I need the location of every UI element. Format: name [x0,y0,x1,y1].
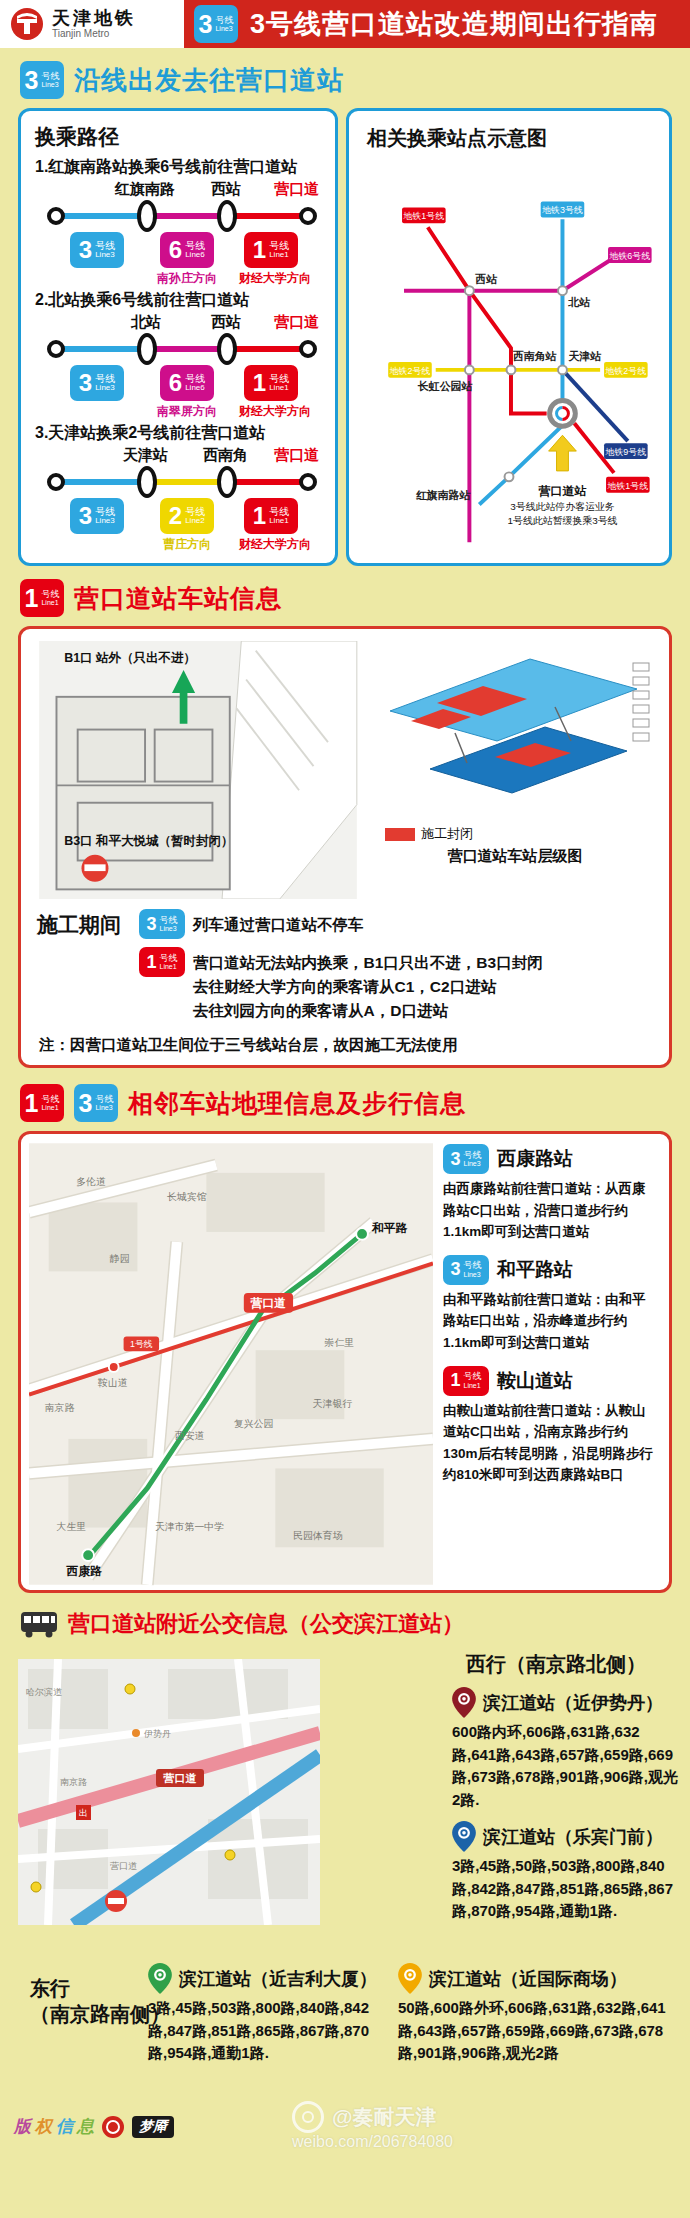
station-label: 北站 [567,297,590,309]
station-layer-diagram [375,641,655,821]
line6-map-badge: 地铁6号线 [609,251,651,261]
line1-map-badge-2: 地铁1号线 [607,481,649,491]
bus-section-title: 营口道站附近公交信息（公交滨江道站） [68,1609,464,1639]
bus-section-header: 营口道站附近公交信息（公交滨江道站） [20,1609,670,1639]
station-floorplan: B1口 站外（只出不进） B3口 和平大悦城（暂时封闭） [33,641,363,899]
mengyan-logo: 梦厣 [132,2116,174,2138]
line1-map-badge: 地铁1号线 [403,211,445,221]
app-header: 天津地铁 Tianjin Metro 3 号线Line3 3号线营口道站改造期间… [0,0,690,48]
station-info-box: B1口 站外（只出不进） B3口 和平大悦城（暂时封闭） [18,626,672,1068]
hepinglu-station-label: 和平路 [371,1221,408,1235]
network-map-heading: 相关换乘站点示意图 [367,125,657,152]
layer-diagram-caption: 营口道站车站层级图 [448,847,583,866]
line6-badge: 6号线Line6 [160,365,214,401]
infographic-poster: { "header":{"logo_cn":"天津地铁","logo_en":"… [0,0,690,2218]
map-pin-icon [452,1821,476,1852]
line2-map-badge-left: 地铁2号线 [389,366,431,376]
section2-title: 营口道站车站信息 [74,582,282,615]
line6-badge: 6号线Line6 [160,232,214,268]
bus-info-section: 营口道 出 哈尔滨道 南京路 营口道 伊势丹 西行（南京路北侧） 滨江道站（近伊… [0,1645,690,2097]
line3-badge: 3号线Line3 [443,1255,489,1285]
map-label: 长城宾馆 [167,1191,207,1202]
red-seal-logo [102,2116,124,2138]
walk-item-anshandao: 1号线Line1 鞍山道站 由鞍山道站前往营口道站：从鞍山道站C口出站，沿南京路… [443,1366,657,1486]
restroom-note: 注：因营口道站卫生间位于三号线站台层，故因施工无法使用 [21,1031,669,1068]
map-label: 天津市第一中学 [155,1521,224,1532]
page-title: 3号线营口道站改造期间出行指南 [250,6,658,42]
bus-routes: 3路,45路,503路,800路,840路,842路,847路,851路,865… [148,1997,386,2065]
network-schematic: 地铁1号线 地铁3号线 地铁6号线 地铁2号线 地铁2号线 地铁9号线 地铁1号… [361,154,657,562]
walk-info-box: 1号线 营口道 西康路 和平路 多伦道 长城宾馆 静园 鞍山道 南京路 西安道 … [18,1131,672,1593]
camera-icon [292,2101,324,2133]
note-line1: 3号线此站停办客运业务 [510,502,615,513]
line1-badge: 1 号线Line1 [20,1084,64,1122]
xikanglu-station-label: 西康路 [65,1564,102,1578]
copyright-logos: 版 权 信 息 梦厣 [14,2115,174,2138]
line2-badge: 2号线Line2 [160,498,214,534]
bus-stop-guoji: 滨江道站（近国际商场） 50路,600路外环,606路,631路,632路,64… [398,1963,680,2065]
logo-cn: 天津地铁 [52,9,136,29]
network-map-panel: 相关换乘站点示意图 地铁1号线 地铁3号线 地铁6号线 地铁2号线 地铁2号线 [346,108,672,566]
line3-notice: 列车通过营口道站不停车 [193,909,364,939]
transfer-route-1: 1.红旗南路站换乘6号线前往营口道站 红旗南路 西站 营口道 3号线Line3 … [35,157,321,284]
map-label: 营口道 [110,1861,137,1871]
line9-map-badge: 地铁9号线 [605,447,647,457]
exit-b3-label: B3口 和平大悦城（暂时封闭） [64,833,233,848]
bus-icon [20,1610,58,1638]
line1-badge: 1号线Line1 [443,1366,489,1396]
footer: 版 权 信 息 梦厣 @奏耐天津 weibo.com/206784080 [0,2099,690,2157]
map-label: 大生里 [57,1521,87,1532]
line3-badge: 3 号线Line3 [194,5,238,43]
station-label: 西南角站 [512,350,557,362]
section1-header: 3 号线Line3 沿线出发去往营口道站 [20,61,670,99]
line1-badge: 1号线Line1 [244,365,298,401]
westbound-label: 西行（南京路北侧） [466,1651,678,1677]
map-label: 南京路 [45,1402,75,1413]
transfer-routes-panel: 换乘路径 1.红旗南路站换乘6号线前往营口道站 红旗南路 西站 营口道 3号线L… [18,108,338,566]
map-label: 民园体育场 [293,1530,342,1541]
map-label: 复兴公园 [234,1418,273,1429]
construction-period: 施工期间 3号线Line3 列车通过营口道站不停车 1号线Line1 营口道站无… [21,899,669,1031]
line1-badge: 1号线Line1 [139,947,185,977]
bus-routes: 50路,600路外环,606路,631路,632路,641路,643路,657路… [398,1997,680,2065]
map-label: 静园 [109,1253,130,1264]
tianjin-metro-logo: 天津地铁 Tianjin Metro [0,0,184,48]
walk-item-xikanglu: 3号线Line3 西康路站 由西康路站前往营口道站：从西康路站C口出站，沿营口道… [443,1144,657,1243]
transfer-heading: 换乘路径 [35,123,321,151]
section3-header: 1 号线Line1 3 号线Line3 相邻车站地理信息及步行信息 [20,1084,670,1122]
exit-marker: 出 [79,1808,88,1818]
map-label: 天津银行 [313,1398,353,1409]
map-pin-icon [398,1963,422,1994]
line3-badge: 3号线Line3 [139,909,185,939]
logo-en: Tianjin Metro [52,28,136,39]
line1-map-tag: 1号线 [130,1339,153,1349]
map-label: 崇仁里 [325,1337,355,1348]
station-label: 西站 [474,273,497,285]
line3-badge: 3号线Line3 [70,365,124,401]
station-label: 红旗南路站 [415,489,470,501]
transfer-route-2: 2.北站换乘6号线前往营口道站 北站 西站 营口道 3号线Line3 6号线Li… [35,290,321,417]
legend-swatch [385,828,415,841]
line3-badge: 3 号线Line3 [20,61,64,99]
line2-map-badge-right: 地铁2号线 [605,366,647,376]
bus-stop-isetan: 滨江道站（近伊势丹） 600路内环,606路,631路,632路,641路,64… [452,1687,678,1811]
line1-badge: 1 号线Line1 [20,579,64,617]
bus-routes: 3路,45路,50路,503路,800路,840路,842路,847路,851路… [452,1855,678,1923]
bus-area-map: 营口道 出 哈尔滨道 南京路 营口道 伊势丹 [18,1659,320,1925]
map-label: 哈尔滨道 [26,1687,62,1697]
map-label: 伊势丹 [144,1729,171,1739]
section3-title: 相邻车站地理信息及步行信息 [128,1087,466,1120]
map-label: 多伦道 [76,1176,106,1187]
station-label: 长虹公园站 [417,380,473,392]
exit-b1-label: B1口 站外（只出不进） [64,651,196,665]
yingkoudao-bus-map-station: 营口道 [163,1772,198,1784]
note-station: 营口道站 [538,484,588,498]
section2-header: 1 号线Line1 营口道站车站信息 [20,579,670,617]
street-map: 1号线 营口道 西康路 和平路 多伦道 长城宾馆 静园 鞍山道 南京路 西安道 … [29,1142,433,1586]
line3-badge: 3 号线Line3 [74,1084,118,1122]
map-pin-icon [148,1963,172,1994]
station-label: 天津站 [567,350,601,362]
route-diagram: 红旗南路 西站 营口道 3号线Line3 6号线Line6 1号线Line1 南… [35,180,321,284]
line1-badge: 1号线Line1 [244,232,298,268]
line3-map-badge: 地铁3号线 [541,205,583,215]
line1-notice: 营口道站无法站内换乘，B1口只出不进，B3口封闭 去往财经大学方向的乘客请从C1… [193,947,543,1023]
map-label: 鞍山道 [97,1377,128,1388]
map-label: 西安道 [175,1430,205,1441]
bus-stop-jili: 滨江道站（近吉利大厦） 3路,45路,503路,800路,840路,842路,8… [148,1963,386,2065]
map-label: 南京路 [60,1777,87,1787]
note-line2: 1号线此站暂缓换乘3号线 [508,515,618,526]
route-diagram: 天津站 西南角 营口道 3号线Line3 2号线Line2 1号线Line1 曹… [35,446,321,550]
transfer-route-3: 3.天津站换乘2号线前往营口道站 天津站 西南角 营口道 3号线Line3 2号… [35,423,321,550]
weibo-watermark: @奏耐天津 weibo.com/206784080 [292,2101,453,2151]
line3-badge: 3号线Line3 [70,232,124,268]
metro-logo-icon [10,7,44,41]
walk-item-hepinglu: 3号线Line3 和平路站 由和平路站前往营口道站：由和平路站E口出站，沿赤峰道… [443,1255,657,1354]
yingkoudao-station-badge: 营口道 [250,1296,287,1310]
bus-stop-lebin: 滨江道站（乐宾门前） 3路,45路,50路,503路,800路,840路,842… [452,1821,678,1923]
bus-routes: 600路内环,606路,631路,632路,641路,643路,657路,659… [452,1721,678,1811]
line3-badge: 3号线Line3 [443,1144,489,1174]
line1-badge: 1号线Line1 [244,498,298,534]
construction-legend: 施工封闭 [385,825,473,843]
map-pin-icon [452,1687,476,1718]
section1-title: 沿线出发去往营口道站 [74,63,344,98]
route-diagram: 北站 西站 营口道 3号线Line3 6号线Line6 1号线Line1 南翠屏… [35,313,321,417]
line3-badge: 3号线Line3 [70,498,124,534]
